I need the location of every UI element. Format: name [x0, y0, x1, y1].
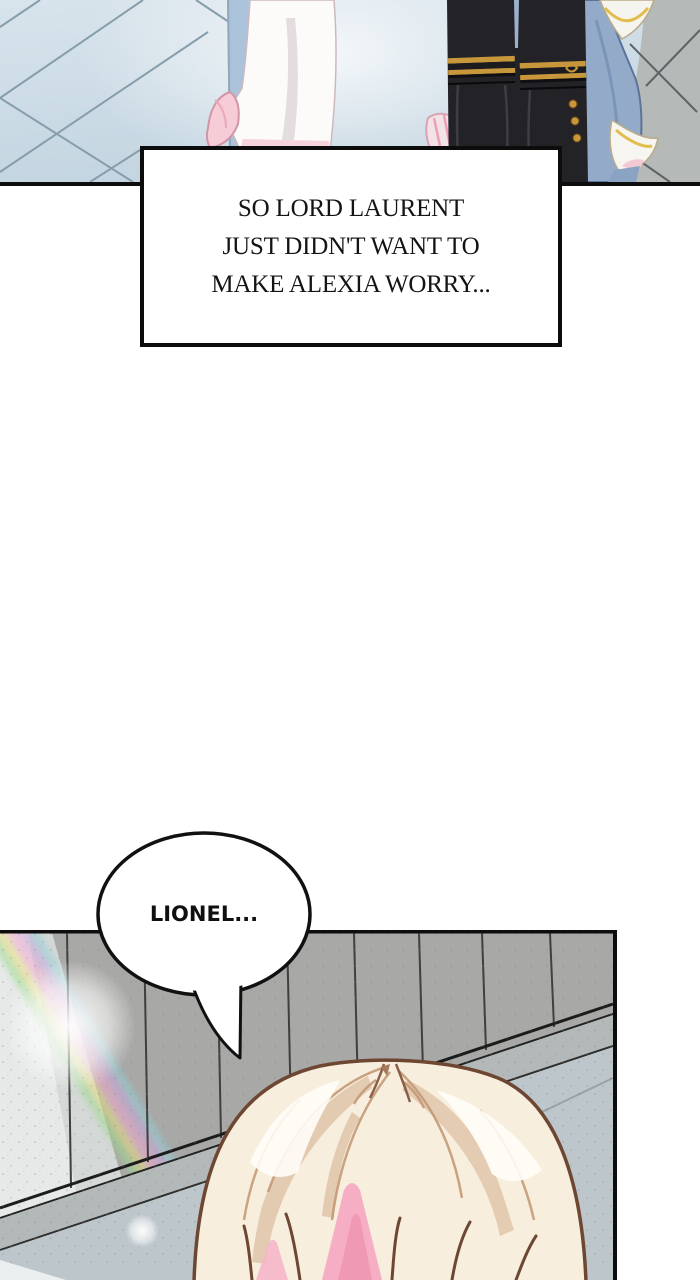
speech-bubble — [80, 818, 342, 1080]
knee-band-right — [520, 61, 587, 83]
panel-bottom-border-right — [613, 930, 617, 1280]
caption-line-1: SO LORD LAURENT — [238, 190, 464, 228]
comic-page: SO LORD LAURENT JUST DIDN'T WANT TO MAKE… — [0, 0, 700, 1280]
speech-text: LIONEL... — [104, 897, 304, 931]
knee-band-left — [448, 56, 516, 78]
caption-line-2: JUST DIDN'T WANT TO — [223, 228, 480, 266]
caption-line-3: MAKE ALEXIA WORRY... — [211, 266, 490, 304]
flare-blob-small — [125, 1214, 159, 1248]
caption-box: SO LORD LAURENT JUST DIDN'T WANT TO MAKE… — [140, 146, 562, 347]
